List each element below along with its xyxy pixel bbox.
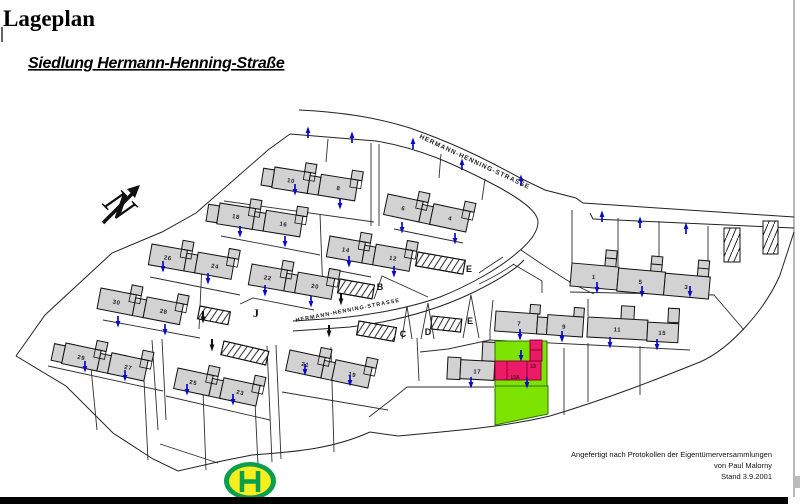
svg-text:3: 3 (684, 285, 689, 291)
svg-text:13: 13 (530, 364, 536, 370)
svg-text:5: 5 (638, 280, 643, 286)
svg-text:D: D (425, 327, 432, 337)
svg-text:15: 15 (658, 331, 666, 337)
svg-text:Angefertigt nach Protokollen d: Angefertigt nach Protokollen der Eigentü… (571, 450, 772, 459)
svg-text:J: J (253, 306, 259, 320)
svg-text:13A: 13A (510, 375, 520, 381)
svg-text:17: 17 (473, 369, 481, 375)
svg-text:Siedlung Hermann-Henning-Straß: Siedlung Hermann-Henning-Straße (28, 55, 285, 72)
svg-text:von Paul Malorny: von Paul Malorny (714, 461, 772, 470)
svg-text:7: 7 (517, 322, 521, 328)
svg-text:C: C (400, 329, 407, 339)
svg-text:E: E (467, 316, 473, 326)
svg-text:9: 9 (562, 325, 566, 331)
svg-text:10: 10 (287, 178, 296, 185)
svg-text:18: 18 (232, 214, 241, 221)
svg-text:B: B (377, 282, 384, 292)
svg-text:Stand 3.9.2001: Stand 3.9.2001 (721, 472, 772, 481)
svg-text:1: 1 (592, 275, 597, 281)
svg-text:16: 16 (279, 222, 288, 229)
svg-text:E: E (466, 264, 472, 274)
svg-text:11: 11 (613, 327, 621, 333)
svg-text:Lageplan: Lageplan (3, 6, 95, 31)
